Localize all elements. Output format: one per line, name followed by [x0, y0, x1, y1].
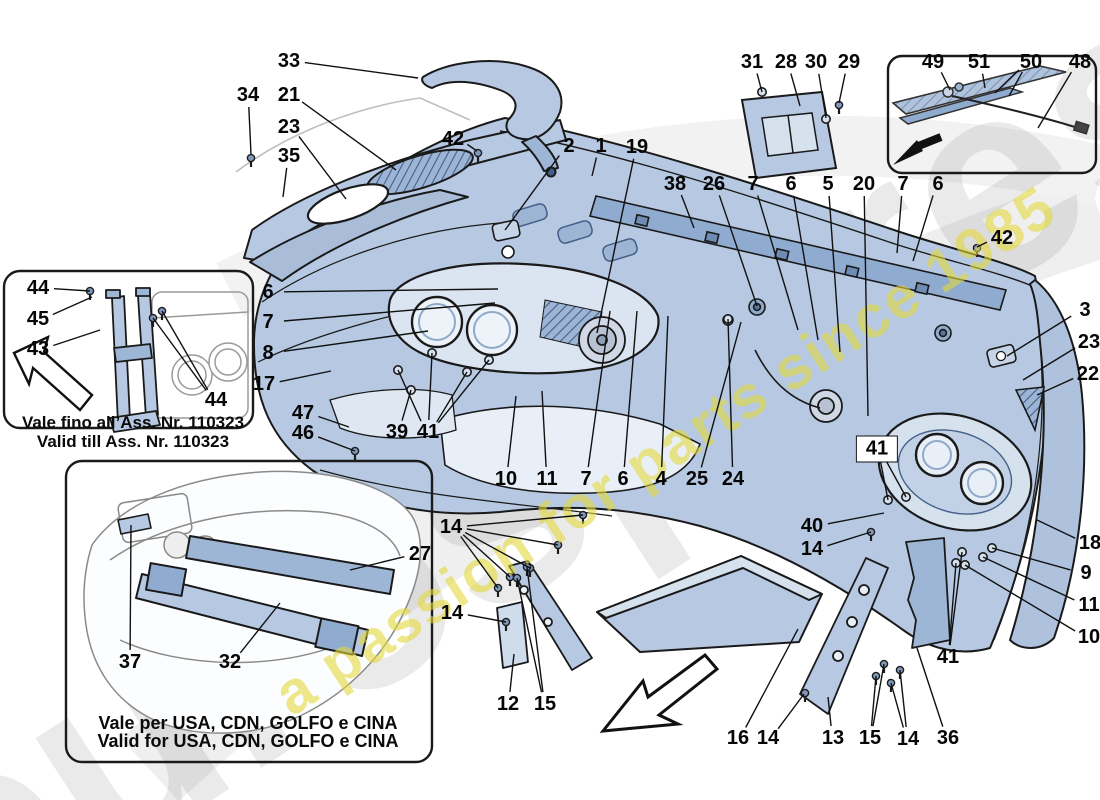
callout-14: 14	[440, 517, 462, 537]
callout-48: 48	[1069, 52, 1091, 72]
callout-34: 34	[237, 85, 259, 105]
callout-5: 5	[822, 174, 833, 194]
nut-icon	[407, 386, 415, 394]
callout-7: 7	[580, 469, 591, 489]
callout-10: 10	[1078, 627, 1100, 647]
callout-3: 3	[1079, 300, 1090, 320]
nut-icon	[822, 115, 830, 123]
direction-arrow-main	[603, 655, 717, 731]
nut-icon	[758, 88, 766, 96]
callout-7: 7	[747, 174, 758, 194]
callout-41: 41	[856, 436, 898, 463]
callout-38: 38	[664, 174, 686, 194]
callout-6: 6	[785, 174, 796, 194]
callout-18: 18	[1079, 533, 1100, 553]
callout-8: 8	[262, 343, 273, 363]
callout-36: 36	[937, 728, 959, 748]
callout-42: 42	[442, 129, 464, 149]
callout-26: 26	[703, 174, 725, 194]
callout-51: 51	[968, 52, 990, 72]
callout-27: 27	[409, 544, 431, 564]
nut-icon	[394, 366, 402, 374]
nut-icon	[961, 561, 969, 569]
callout-15: 15	[859, 728, 881, 748]
callout-17: 17	[253, 374, 275, 394]
screw-icon	[247, 154, 254, 167]
callout-30: 30	[805, 52, 827, 72]
callout-24: 24	[722, 469, 744, 489]
nut-icon	[428, 349, 436, 357]
callout-32: 32	[219, 652, 241, 672]
callout-2: 2	[563, 136, 574, 156]
callout-41: 41	[417, 422, 439, 442]
callout-14: 14	[441, 603, 463, 623]
nut-icon	[979, 553, 987, 561]
callout-22: 22	[1077, 364, 1099, 384]
nut-icon	[958, 548, 966, 556]
callout-40: 40	[801, 516, 823, 536]
screw-icon	[86, 287, 93, 300]
diagram-artwork: eurospares	[0, 0, 1100, 800]
nut-icon	[485, 356, 493, 364]
callout-28: 28	[775, 52, 797, 72]
callout-20: 20	[853, 174, 875, 194]
callout-31: 31	[741, 52, 763, 72]
nut-icon	[463, 368, 471, 376]
callout-33: 33	[278, 51, 300, 71]
callout-23: 23	[278, 117, 300, 137]
callout-35: 35	[278, 146, 300, 166]
callout-12: 12	[497, 694, 519, 714]
callout-9: 9	[1080, 563, 1091, 583]
callout-15: 15	[534, 694, 556, 714]
callout-50: 50	[1020, 52, 1042, 72]
callout-13: 13	[822, 728, 844, 748]
callout-46: 46	[292, 423, 314, 443]
callout-44: 44	[205, 390, 227, 410]
nut-icon	[952, 559, 960, 567]
callout-10: 10	[495, 469, 517, 489]
callout-14: 14	[801, 539, 823, 559]
callout-43: 43	[27, 339, 49, 359]
callout-44: 44	[27, 278, 49, 298]
callout-14: 14	[897, 729, 919, 749]
callout-14: 14	[757, 728, 779, 748]
callout-16: 16	[727, 728, 749, 748]
callout-6: 6	[262, 282, 273, 302]
callout-41: 41	[937, 647, 959, 667]
note-valid-for: Valid for USA, CDN, GOLFO e CINA	[97, 731, 398, 752]
screw-icon	[872, 672, 879, 685]
nut-icon	[902, 493, 910, 501]
callout-6: 6	[617, 469, 628, 489]
callout-7: 7	[897, 174, 908, 194]
callout-29: 29	[838, 52, 860, 72]
screw-icon	[880, 660, 887, 673]
callout-37: 37	[119, 652, 141, 672]
callout-6: 6	[932, 174, 943, 194]
direction-arrow-box1	[14, 337, 92, 410]
callout-11: 11	[536, 469, 557, 489]
callout-25: 25	[686, 469, 708, 489]
callout-4: 4	[655, 469, 666, 489]
callout-21: 21	[278, 85, 300, 105]
callout-47: 47	[292, 403, 314, 423]
nut-icon	[724, 315, 732, 323]
note-valid-till: Valid till Ass. Nr. 110323	[37, 432, 229, 452]
screw-icon	[887, 679, 894, 692]
nut-icon	[988, 544, 996, 552]
callout-42: 42	[991, 228, 1013, 248]
nut-icon	[884, 496, 892, 504]
screw-icon	[896, 666, 903, 679]
callout-49: 49	[922, 52, 944, 72]
note-vale-fino: Vale fino all’Ass. Nr. 110323	[22, 413, 244, 433]
callout-23: 23	[1078, 332, 1100, 352]
callout-7: 7	[262, 312, 273, 332]
callout-1: 1	[595, 136, 606, 156]
callout-39: 39	[386, 422, 408, 442]
callout-45: 45	[27, 309, 49, 329]
callout-11: 11	[1078, 595, 1099, 615]
callout-19: 19	[626, 137, 648, 157]
diagram-stage: eurospares	[0, 0, 1100, 800]
